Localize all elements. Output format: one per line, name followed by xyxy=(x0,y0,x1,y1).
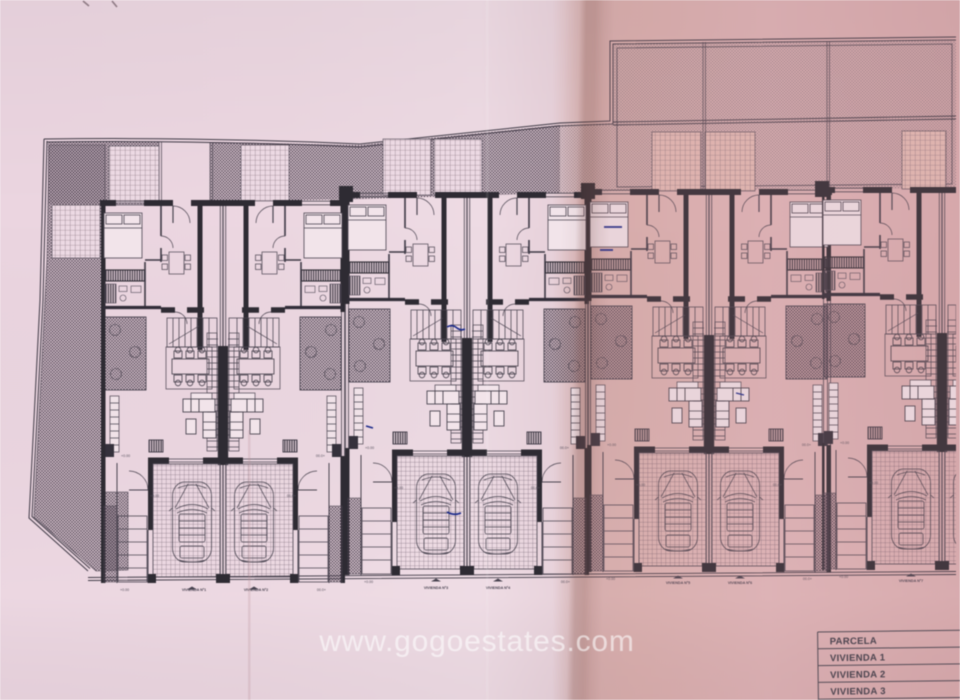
svg-text:VIVIENDA 1: VIVIENDA 1 xyxy=(830,652,886,664)
svg-text:VIVIENDA Nº4: VIVIENDA Nº4 xyxy=(486,586,511,590)
svg-text:VIVIENDA Nº1: VIVIENDA Nº1 xyxy=(182,588,206,592)
svg-text:VIVIENDA Nº3: VIVIENDA Nº3 xyxy=(424,586,448,590)
svg-text:www.gogoestates.com: www.gogoestates.com xyxy=(318,625,634,658)
svg-text:PARCELA: PARCELA xyxy=(830,636,877,648)
svg-text:VIVIENDA Nº2: VIVIENDA Nº2 xyxy=(244,588,268,592)
svg-text:VIVIENDA 2: VIVIENDA 2 xyxy=(830,669,886,681)
svg-text:VIVIENDA 3: VIVIENDA 3 xyxy=(830,686,886,698)
